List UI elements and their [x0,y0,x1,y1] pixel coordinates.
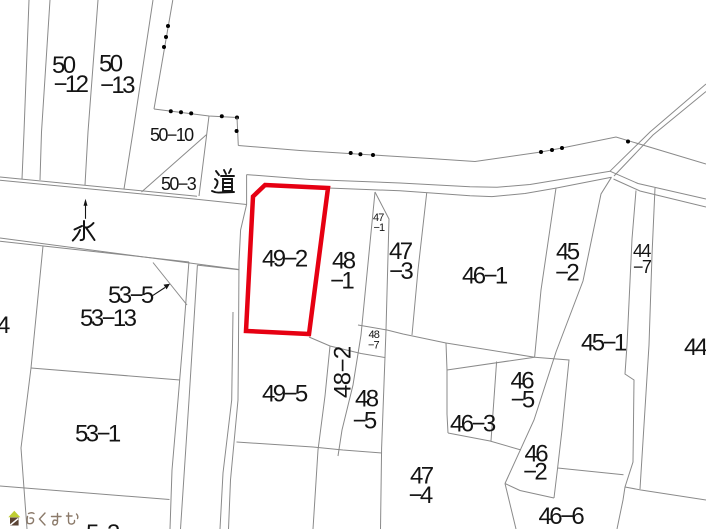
svg-text:−12: −12 [54,71,89,98]
svg-text:50−10: 50−10 [150,125,194,145]
svg-text:53−13: 53−13 [80,305,137,332]
svg-text:46−1: 46−1 [462,263,508,290]
svg-text:−2: −2 [523,459,547,486]
svg-text:45−1: 45−1 [581,330,627,357]
svg-text:44: 44 [684,334,706,361]
svg-text:−7: −7 [633,257,652,277]
svg-text:−4: −4 [409,482,433,509]
svg-text:−2: −2 [555,260,579,287]
svg-text:53−1: 53−1 [75,421,121,448]
svg-text:50−3: 50−3 [161,174,197,194]
svg-text:49−5: 49−5 [262,381,308,408]
svg-text:−1: −1 [374,222,386,234]
svg-text:−1: −1 [330,268,354,295]
svg-text:49−2: 49−2 [262,246,308,273]
svg-text:−5: −5 [511,387,535,414]
svg-text:48−2: 48−2 [330,346,357,398]
svg-text:−13: −13 [100,72,135,99]
svg-text:46−6: 46−6 [539,503,585,529]
svg-text:−3: −3 [389,258,413,285]
svg-text:−7: −7 [368,340,380,352]
svg-text:46−3: 46−3 [450,411,496,438]
svg-text:−5: −5 [353,408,377,435]
